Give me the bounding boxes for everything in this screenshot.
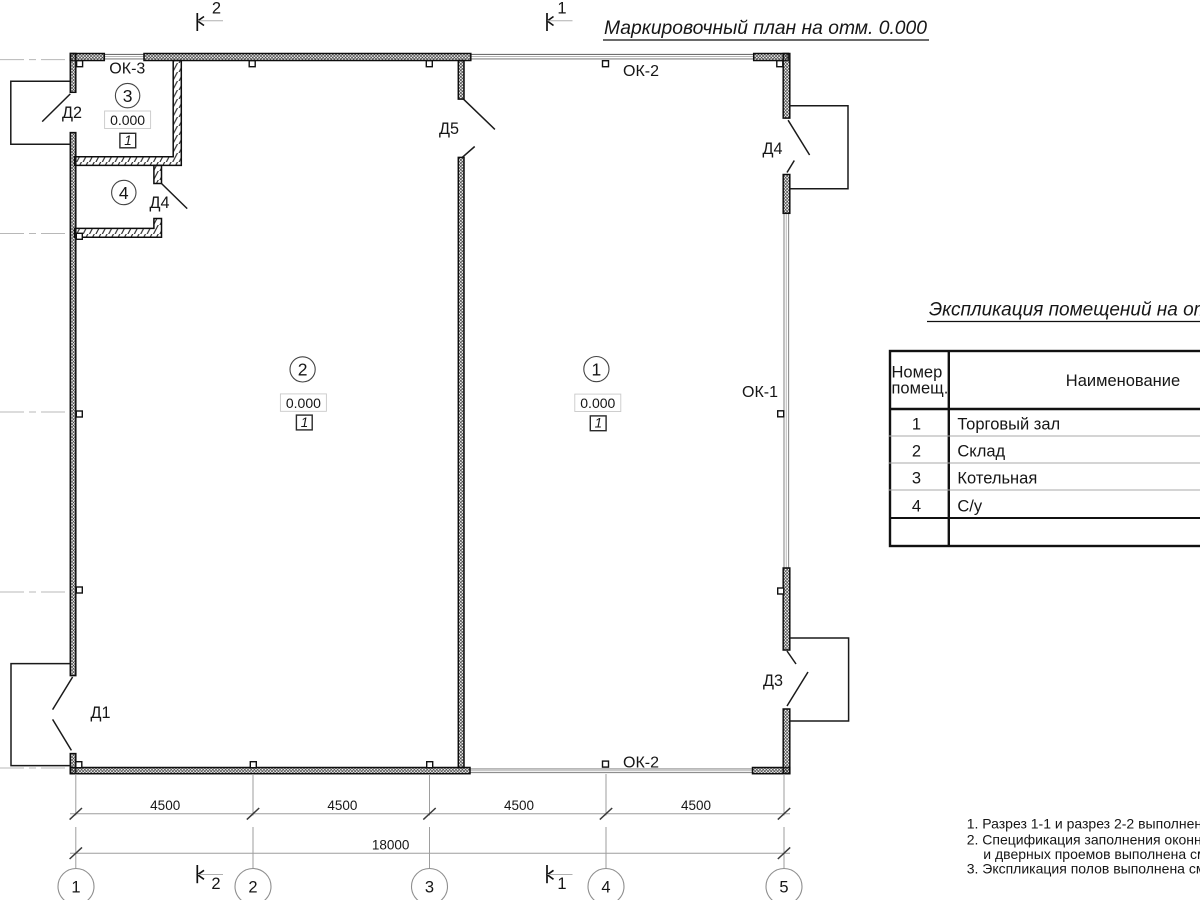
svg-text:18000: 18000 <box>372 838 410 853</box>
svg-text:1: 1 <box>595 416 603 431</box>
svg-text:1: 1 <box>557 875 566 893</box>
svg-text:2. Спецификация заполнения око: 2. Спецификация заполнения оконных <box>967 831 1200 847</box>
svg-text:Д4: Д4 <box>150 194 170 212</box>
svg-text:1: 1 <box>557 0 566 18</box>
svg-text:4500: 4500 <box>681 798 711 813</box>
svg-text:5: 5 <box>779 879 788 897</box>
svg-text:ОК-1: ОК-1 <box>742 384 778 401</box>
svg-text:2: 2 <box>298 360 308 380</box>
svg-text:4: 4 <box>119 183 129 203</box>
svg-text:1: 1 <box>124 133 132 148</box>
svg-text:2: 2 <box>248 879 257 897</box>
svg-text:ОК-2: ОК-2 <box>623 63 659 80</box>
svg-text:С/у: С/у <box>957 498 983 516</box>
svg-text:2: 2 <box>212 0 221 17</box>
svg-text:3. Экспликация полов выполнена: 3. Экспликация полов выполнена см. лист … <box>967 861 1200 877</box>
svg-text:4500: 4500 <box>327 798 357 813</box>
svg-text:4: 4 <box>601 879 610 897</box>
svg-text:0.000: 0.000 <box>580 395 615 411</box>
svg-text:2: 2 <box>912 443 921 461</box>
svg-text:Маркировочный план на отм. 0.0: Маркировочный план на отм. 0.000 <box>604 18 927 39</box>
svg-text:1: 1 <box>592 359 602 379</box>
svg-text:4500: 4500 <box>150 798 180 813</box>
svg-text:3: 3 <box>123 86 133 106</box>
svg-text:1: 1 <box>301 415 309 430</box>
svg-text:ОК-3: ОК-3 <box>109 61 145 78</box>
svg-text:Д3: Д3 <box>763 672 783 690</box>
svg-text:Котельная: Котельная <box>957 470 1037 488</box>
svg-text:4500: 4500 <box>504 798 534 813</box>
svg-text:2: 2 <box>211 875 220 893</box>
svg-text:Наименование: Наименование <box>1066 372 1180 390</box>
svg-text:помещ.: помещ. <box>892 380 949 398</box>
svg-text:3: 3 <box>425 879 434 897</box>
svg-text:Склад: Склад <box>957 443 1005 461</box>
svg-text:1: 1 <box>912 416 921 434</box>
svg-text:Д2: Д2 <box>62 104 82 122</box>
svg-text:3: 3 <box>912 470 921 488</box>
svg-text:Экспликация помещений на отм.: Экспликация помещений на отм. 0.000 <box>929 300 1200 321</box>
svg-text:Д5: Д5 <box>439 120 459 138</box>
svg-text:Торговый зал: Торговый зал <box>957 416 1060 434</box>
svg-text:1. Разрез 1-1 и разрез 2-2 вып: 1. Разрез 1-1 и разрез 2-2 выполнены на … <box>967 816 1200 832</box>
svg-text:4: 4 <box>912 498 921 516</box>
svg-text:Д1: Д1 <box>91 704 111 722</box>
svg-text:ОК-2: ОК-2 <box>623 754 659 771</box>
svg-text:1: 1 <box>71 879 80 897</box>
svg-text:Д4: Д4 <box>763 140 783 158</box>
svg-text:0.000: 0.000 <box>110 112 145 128</box>
svg-text:0.000: 0.000 <box>286 395 321 411</box>
